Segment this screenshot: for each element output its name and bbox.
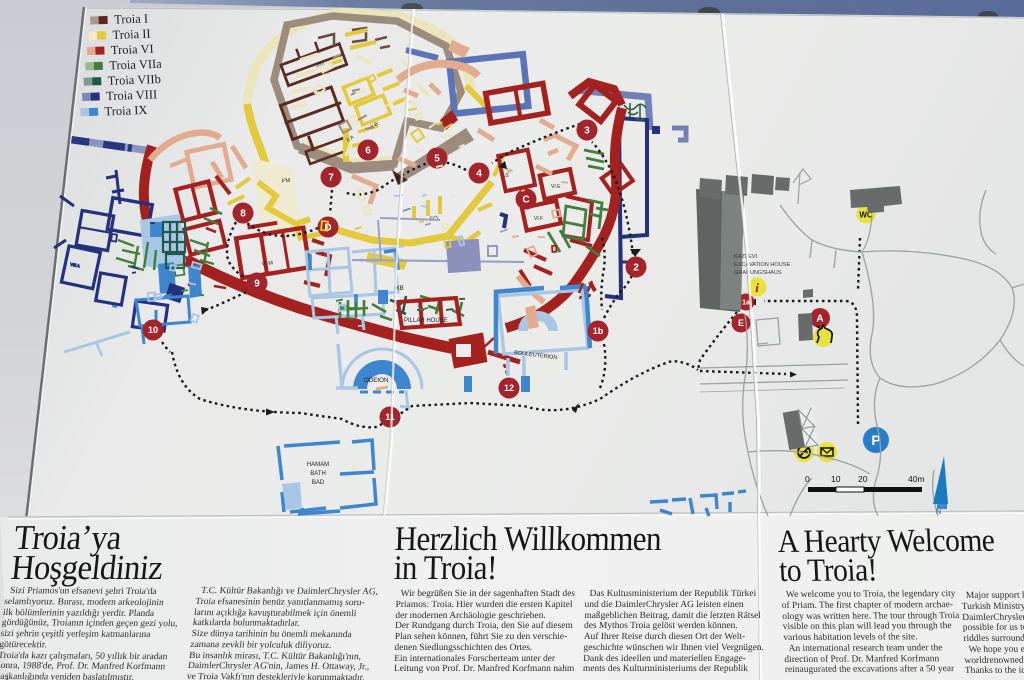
svg-text:BAD: BAD bbox=[312, 480, 325, 486]
svg-text:BATH: BATH bbox=[310, 471, 326, 477]
svg-text:VI F: VI F bbox=[534, 216, 543, 222]
svg-text:Troia II: Troia II bbox=[112, 27, 151, 42]
svg-text:12: 12 bbox=[504, 383, 514, 393]
svg-text:0: 0 bbox=[805, 474, 810, 484]
svg-text:Troia VI: Troia VI bbox=[111, 42, 154, 57]
svg-text:C: C bbox=[522, 195, 529, 206]
svg-text:20: 20 bbox=[858, 474, 868, 484]
svg-text:Troia VIII: Troia VIII bbox=[106, 87, 158, 103]
svg-text:FM: FM bbox=[281, 178, 290, 185]
svg-text:4: 4 bbox=[476, 169, 482, 180]
svg-text:Troia I: Troia I bbox=[114, 11, 148, 26]
svg-text:9: 9 bbox=[254, 279, 260, 290]
svg-text:GRABUNGSHAUS: GRABUNGSHAUS bbox=[734, 270, 782, 276]
svg-text:E: E bbox=[738, 318, 744, 328]
svg-text:2: 2 bbox=[633, 263, 639, 274]
svg-text:Troia VIIa: Troia VIIa bbox=[109, 57, 162, 73]
svg-text:5: 5 bbox=[434, 154, 440, 165]
svg-text:Troia IX: Troia IX bbox=[104, 103, 147, 118]
svg-text:N: N bbox=[936, 509, 941, 516]
svg-text:3: 3 bbox=[584, 126, 590, 137]
svg-text:A: A bbox=[816, 314, 823, 325]
svg-text:HAMAM: HAMAM bbox=[307, 462, 329, 468]
svg-text:PILLAR HOUSE: PILLAR HOUSE bbox=[404, 318, 448, 324]
svg-text:Troia VIIb: Troia VIIb bbox=[107, 72, 161, 88]
svg-text:10: 10 bbox=[148, 325, 158, 335]
svg-text:8: 8 bbox=[240, 209, 246, 220]
svg-text:6: 6 bbox=[365, 146, 371, 157]
svg-text:VI E: VI E bbox=[551, 184, 561, 190]
svg-text:i: i bbox=[755, 280, 759, 295]
svg-text:1b: 1b bbox=[593, 326, 604, 336]
svg-text:7: 7 bbox=[328, 173, 334, 184]
svg-text:EXCAVATION HOUSE: EXCAVATION HOUSE bbox=[734, 262, 791, 268]
svg-text:ODEION: ODEION bbox=[364, 377, 388, 384]
svg-text:40m: 40m bbox=[908, 474, 925, 484]
svg-text:11: 11 bbox=[385, 412, 395, 422]
svg-text:10: 10 bbox=[831, 474, 841, 484]
